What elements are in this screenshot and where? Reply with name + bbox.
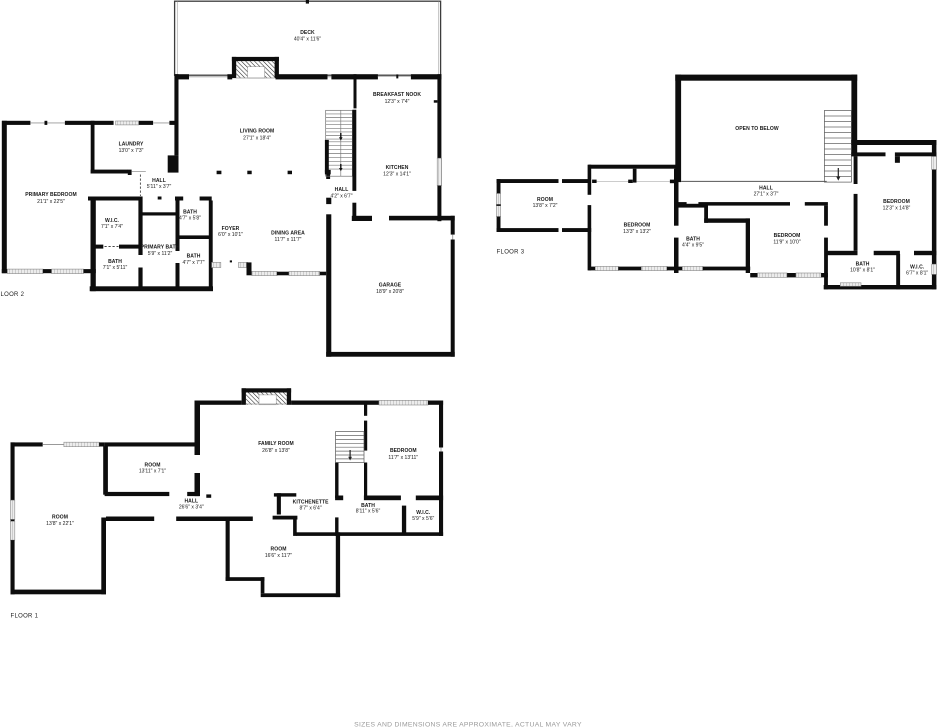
svg-text:12'3" x 7'4": 12'3" x 7'4" bbox=[385, 99, 410, 105]
svg-text:BEDROOM: BEDROOM bbox=[774, 233, 801, 239]
svg-text:5'11" x 3'7": 5'11" x 3'7" bbox=[147, 184, 172, 190]
svg-text:7'1" x 5'11": 7'1" x 5'11" bbox=[103, 265, 128, 271]
svg-text:10'8" x 8'1": 10'8" x 8'1" bbox=[850, 267, 875, 273]
svg-text:FAMILY ROOM: FAMILY ROOM bbox=[258, 441, 294, 447]
svg-text:ROOM: ROOM bbox=[52, 515, 68, 521]
svg-text:11'9" x 10'0": 11'9" x 10'0" bbox=[773, 239, 801, 245]
svg-text:BEDROOM: BEDROOM bbox=[390, 448, 417, 454]
svg-text:8'11" x 5'6": 8'11" x 5'6" bbox=[356, 509, 381, 515]
svg-text:LAUNDRY: LAUNDRY bbox=[119, 142, 144, 148]
svg-text:4'2" x 6'7": 4'2" x 6'7" bbox=[330, 194, 352, 200]
svg-text:13'8" x 7'2": 13'8" x 7'2" bbox=[533, 203, 558, 209]
svg-text:GARAGE: GARAGE bbox=[379, 283, 402, 289]
svg-text:11'7" x 13'11": 11'7" x 13'11" bbox=[388, 455, 418, 461]
svg-text:13'3" x 13'2": 13'3" x 13'2" bbox=[623, 229, 651, 235]
svg-text:ROOM: ROOM bbox=[271, 547, 287, 553]
svg-text:13'8" x 22'1": 13'8" x 22'1" bbox=[46, 521, 74, 527]
svg-text:FLOOR 2: FLOOR 2 bbox=[0, 292, 25, 298]
svg-text:7'1" x 7'4": 7'1" x 7'4" bbox=[101, 224, 123, 230]
svg-text:4'7" x 5'8": 4'7" x 5'8" bbox=[179, 215, 201, 221]
svg-text:FLOOR 1: FLOOR 1 bbox=[11, 614, 39, 620]
svg-text:8'7" x 6'4": 8'7" x 6'4" bbox=[300, 506, 322, 512]
svg-text:6'0" x 10'1": 6'0" x 10'1" bbox=[218, 232, 243, 238]
svg-text:12'3" x 14'8": 12'3" x 14'8" bbox=[883, 205, 911, 211]
svg-text:W.I.C.: W.I.C. bbox=[416, 510, 431, 516]
svg-text:13'0" x 7'3": 13'0" x 7'3" bbox=[119, 148, 144, 154]
svg-text:26'6" x 3'4": 26'6" x 3'4" bbox=[179, 504, 204, 510]
svg-text:HALL: HALL bbox=[759, 186, 773, 192]
svg-text:KITCHEN: KITCHEN bbox=[386, 165, 409, 171]
svg-text:ROOM: ROOM bbox=[145, 463, 161, 469]
svg-text:11'7" x 11'7": 11'7" x 11'7" bbox=[275, 237, 302, 243]
svg-text:40'4" x 11'6": 40'4" x 11'6" bbox=[294, 37, 322, 43]
svg-text:HALL: HALL bbox=[335, 187, 349, 193]
svg-text:LIVING ROOM: LIVING ROOM bbox=[240, 129, 274, 135]
svg-text:BATH: BATH bbox=[187, 254, 201, 260]
svg-text:13'11" x 7'1": 13'11" x 7'1" bbox=[139, 469, 167, 475]
svg-text:FLOOR 3: FLOOR 3 bbox=[497, 250, 525, 256]
svg-text:27'1" x 3'7": 27'1" x 3'7" bbox=[754, 192, 779, 198]
svg-text:PRIMARY BATH: PRIMARY BATH bbox=[141, 245, 180, 251]
svg-text:W.I.C.: W.I.C. bbox=[105, 218, 120, 224]
svg-text:5'9" x 5'6": 5'9" x 5'6" bbox=[412, 516, 434, 522]
svg-text:26'8" x 13'8": 26'8" x 13'8" bbox=[262, 448, 290, 454]
svg-text:27'1" x 18'4": 27'1" x 18'4" bbox=[243, 136, 271, 142]
svg-text:12'3" x 14'1": 12'3" x 14'1" bbox=[383, 172, 411, 178]
svg-text:6'7" x 8'1": 6'7" x 8'1" bbox=[906, 270, 928, 276]
svg-text:PRIMARY BEDROOM: PRIMARY BEDROOM bbox=[25, 192, 77, 198]
svg-text:4'4" x 9'5": 4'4" x 9'5" bbox=[682, 242, 704, 248]
svg-text:BREAKFAST NOOK: BREAKFAST NOOK bbox=[373, 92, 421, 98]
svg-text:18'9" x 20'8": 18'9" x 20'8" bbox=[376, 289, 404, 295]
svg-text:OPEN TO BELOW: OPEN TO BELOW bbox=[735, 126, 779, 132]
svg-text:16'6" x 11'7": 16'6" x 11'7" bbox=[265, 553, 293, 559]
svg-text:SIZES AND DIMENSIONS ARE APPRO: SIZES AND DIMENSIONS ARE APPROXIMATE, AC… bbox=[354, 721, 582, 727]
svg-text:BEDROOM: BEDROOM bbox=[624, 223, 651, 229]
svg-text:4'7" x 7'7": 4'7" x 7'7" bbox=[182, 260, 204, 266]
svg-text:DINING AREA: DINING AREA bbox=[271, 231, 305, 237]
svg-text:5'9" x 11'2": 5'9" x 11'2" bbox=[148, 251, 173, 257]
svg-text:BEDROOM: BEDROOM bbox=[883, 199, 910, 205]
svg-text:DECK: DECK bbox=[300, 30, 315, 36]
svg-text:21'1" x 22'5": 21'1" x 22'5" bbox=[37, 199, 65, 205]
